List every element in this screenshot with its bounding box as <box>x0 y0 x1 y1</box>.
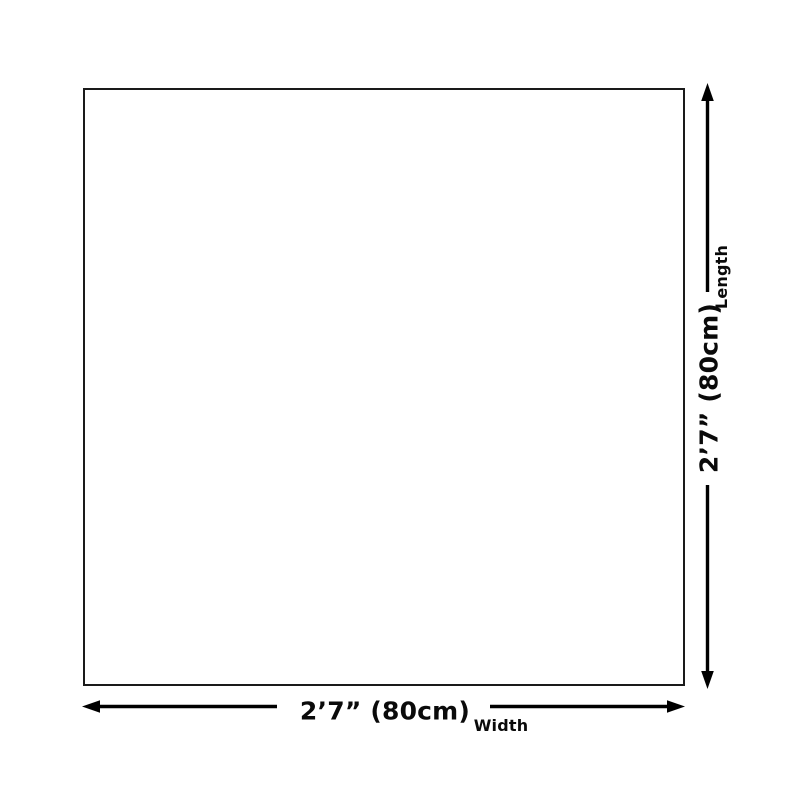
width-dimension-label: Width <box>474 718 529 734</box>
length-dimension-value: 2’7” (80cm) <box>697 303 722 473</box>
product-outline <box>83 88 685 686</box>
length-arrow-top-head <box>701 83 714 101</box>
width-arrow-right-head <box>667 700 685 713</box>
width-arrow-left-head <box>82 700 100 713</box>
length-dimension-label: Length <box>714 245 730 309</box>
size-diagram: 2’7” (80cm) Length 2’7” (80cm) Width <box>0 0 800 800</box>
width-dimension-value: 2’7” (80cm) <box>300 699 470 724</box>
length-arrow-bottom-head <box>701 671 714 689</box>
